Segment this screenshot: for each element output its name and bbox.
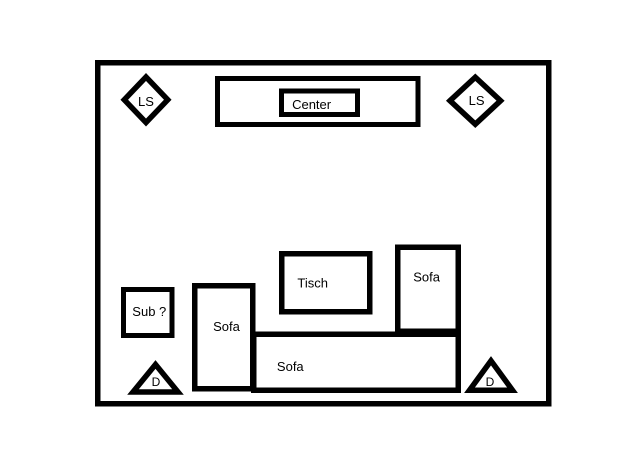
svg-text:LS: LS [469,93,485,108]
svg-text:Sofa: Sofa [413,270,441,285]
svg-text:Sub ?: Sub ? [132,304,166,319]
svg-text:LS: LS [138,94,154,109]
svg-text:Sofa: Sofa [213,319,241,334]
svg-text:D: D [486,375,495,389]
svg-text:Tisch: Tisch [297,276,328,291]
svg-text:D: D [152,375,161,389]
svg-text:Center: Center [292,97,332,112]
svg-text:Sofa: Sofa [277,359,305,374]
